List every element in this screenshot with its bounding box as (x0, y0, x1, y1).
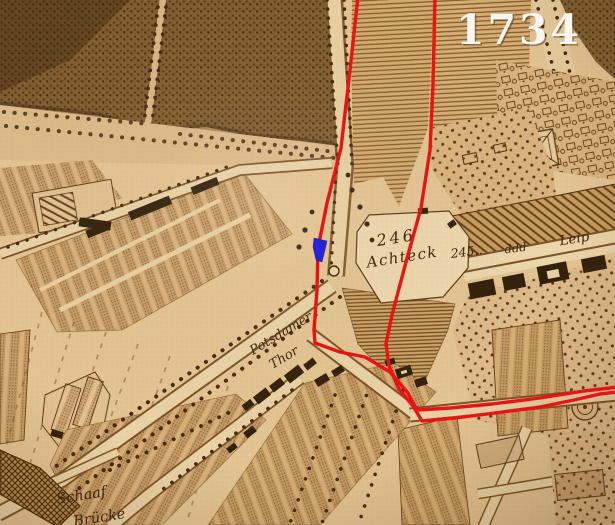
potsdamer-thor-gate (329, 266, 339, 276)
year-label-text: 1734 (456, 6, 582, 54)
vignette (0, 0, 615, 525)
year-label: 1734 1734 (456, 6, 584, 56)
map-canvas: 246 Achteck 245.. ddd Leip Potsdamer Tho… (0, 0, 615, 525)
map-viewport: 246 Achteck 245.. ddd Leip Potsdamer Tho… (0, 0, 615, 525)
